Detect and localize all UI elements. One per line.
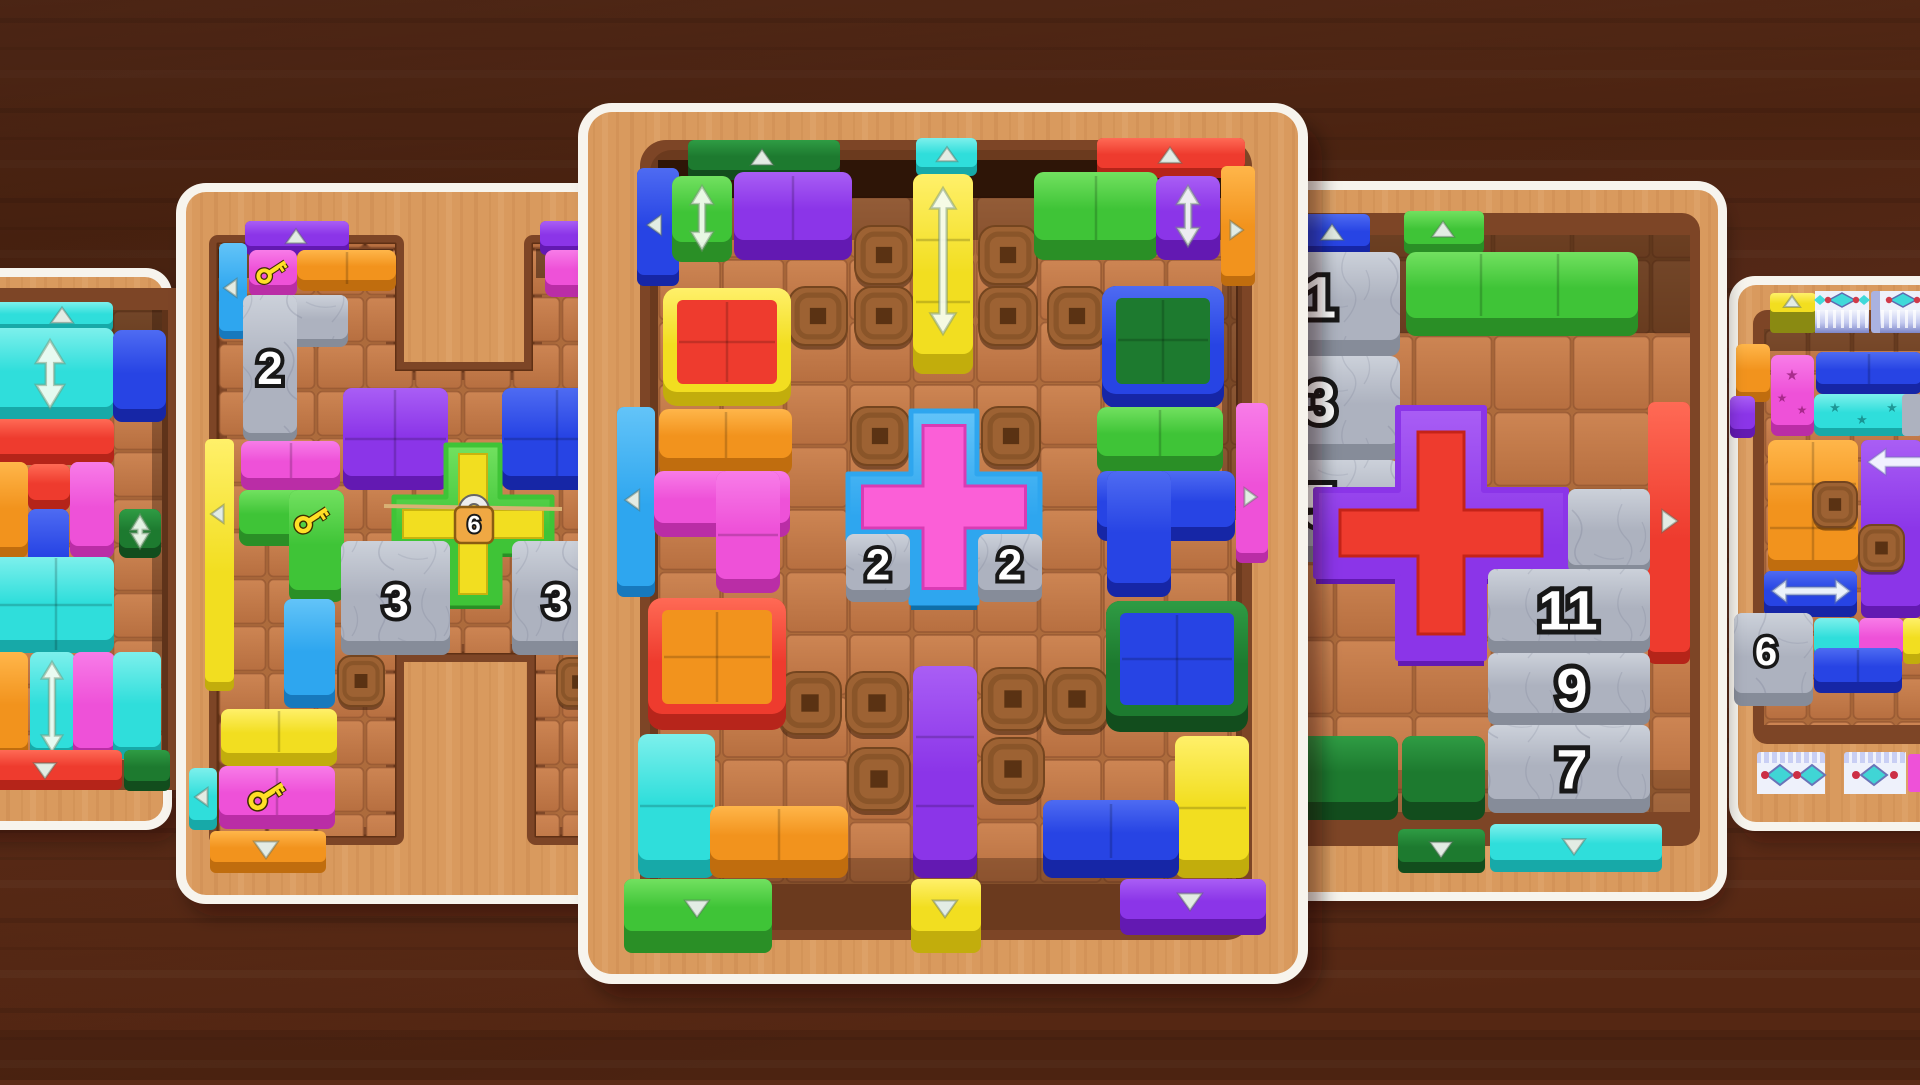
svg-text:2: 2 — [866, 541, 890, 590]
svg-text:★: ★ — [1856, 412, 1868, 427]
svg-text:6: 6 — [1755, 630, 1777, 674]
svg-text:★: ★ — [1886, 400, 1898, 415]
svg-text:2: 2 — [998, 541, 1022, 590]
svg-text:7: 7 — [1556, 738, 1587, 801]
svg-text:★: ★ — [1797, 403, 1808, 417]
svg-text:3: 3 — [543, 575, 569, 627]
svg-text:★: ★ — [1829, 400, 1841, 415]
svg-text:11: 11 — [1538, 579, 1597, 642]
svg-text:2: 2 — [257, 342, 283, 394]
svg-text:3: 3 — [383, 575, 409, 627]
svg-text:★: ★ — [1785, 367, 1798, 384]
svg-text:★: ★ — [1777, 391, 1788, 405]
svg-text:6: 6 — [467, 512, 480, 539]
svg-text:9: 9 — [1556, 657, 1587, 720]
